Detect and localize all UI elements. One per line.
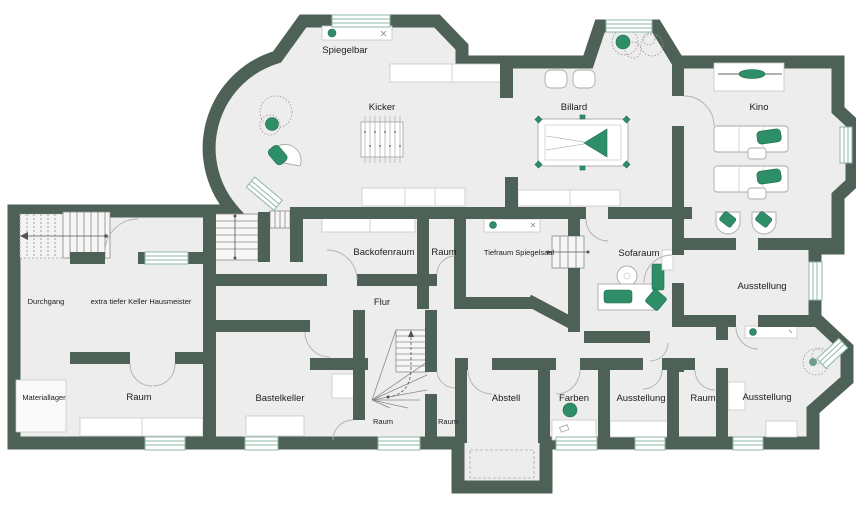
window [809, 262, 822, 300]
window [378, 437, 420, 450]
window [245, 437, 278, 450]
room-label-raum-treppe: Raum [373, 417, 393, 426]
window [145, 437, 185, 450]
cabinet [518, 190, 620, 206]
room-label-ausstellung-mitte: Ausstellung [737, 281, 786, 292]
room-label-billard: Billard [561, 102, 587, 113]
floorplan-svg: Spiegelbar Kicker Billard Kino Durchgang… [0, 0, 856, 506]
bar-counter-icon [322, 26, 392, 40]
window [840, 127, 852, 163]
armchair-icon [752, 211, 776, 234]
room-label-bastelkeller: Bastelkeller [255, 393, 304, 404]
room-label-flur: Flur [374, 297, 390, 308]
room-label-raum-gross: Raum [126, 392, 151, 403]
cabinet [390, 64, 507, 82]
stairs-entrance-northwest [20, 212, 110, 258]
cabinet [362, 188, 465, 206]
room-label-kicker: Kicker [369, 102, 395, 113]
window [733, 437, 763, 450]
room-label-ausstellung-ost: Ausstellung [742, 392, 791, 403]
bar-counter-icon [484, 219, 540, 232]
billard-table-icon [535, 115, 630, 170]
projector-icon [714, 63, 784, 91]
room-label-tiefraum: Tiefraum Spiegelsaal [484, 248, 555, 257]
room-label-durchgang: Durchgang [28, 297, 65, 306]
room-label-raum-klein: Raum [431, 247, 456, 258]
room-label-abstell: Abstell [492, 393, 521, 404]
foosball-table-icon [361, 116, 403, 163]
window [635, 437, 665, 450]
room-label-spiegelbar: Spiegelbar [322, 45, 367, 56]
floorplan-canvas: Spiegelbar Kicker Billard Kino Durchgang… [0, 0, 856, 506]
cabinet [80, 418, 203, 436]
exhibit-pedestal [610, 421, 668, 437]
room-label-kino: Kino [749, 102, 768, 113]
room-label-raum-sued: Raum [690, 393, 715, 404]
room-label-backofenraum: Backofenraum [353, 247, 414, 258]
room-label-materiallager: Materiallager [22, 393, 66, 402]
materiallager-zone [16, 380, 66, 432]
room-label-farben: Farben [559, 393, 589, 404]
room-label-raum-schmal: Raum [438, 417, 458, 426]
seat [545, 70, 567, 88]
workbench [246, 416, 304, 436]
window [606, 20, 652, 32]
exhibit-pedestal [745, 326, 797, 338]
room-label-hausmeister: extra tiefer Keller Hausmeister [91, 297, 192, 306]
armchair-icon [716, 211, 740, 234]
seat [573, 70, 595, 88]
window [556, 437, 597, 450]
window [145, 252, 188, 264]
room-label-ausstellung-sued: Ausstellung [616, 393, 665, 404]
room-label-sofaraum: Sofaraum [618, 248, 659, 259]
exhibit-pedestal [766, 421, 797, 437]
window [332, 15, 390, 27]
